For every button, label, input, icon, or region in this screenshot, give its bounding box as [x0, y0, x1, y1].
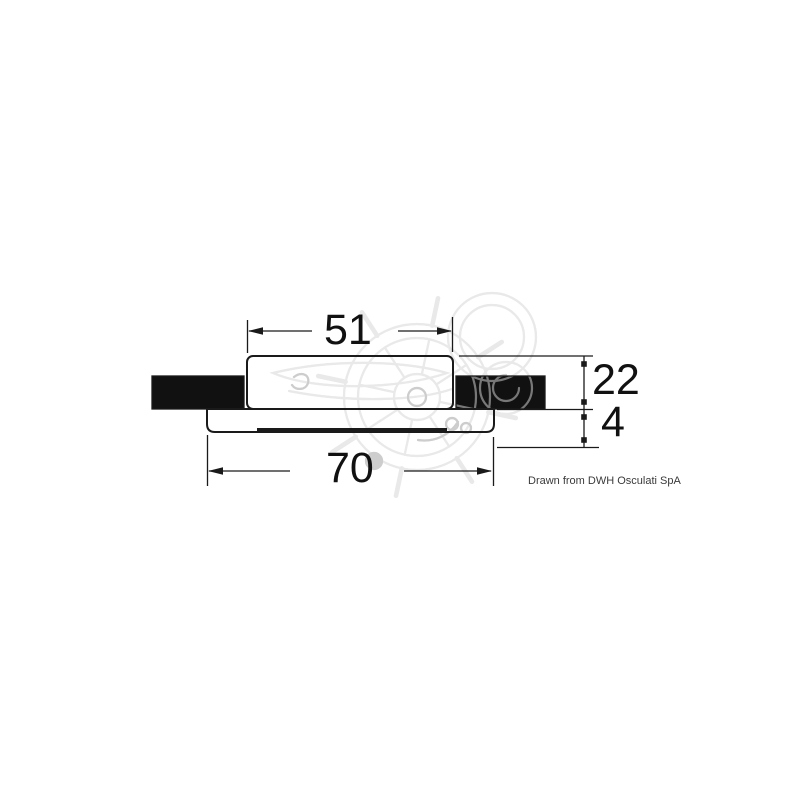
ceiling-panel-right-outline [456, 376, 545, 409]
dim-label-flange-thickness: 4 [601, 401, 625, 444]
dimension-22-4 [459, 356, 599, 448]
dim-70-arrow-left [208, 467, 223, 475]
dim-51-arrow-left [248, 327, 263, 335]
dim-label-flange-width: 70 [326, 447, 374, 490]
dim-label-body-height: 22 [592, 359, 640, 402]
technical-drawing-canvas: 51 70 22 4 Drawn from DWH Osculati SpA [0, 0, 800, 800]
dim-4-marker-bottom [581, 437, 587, 443]
dim-22-marker-bottom [581, 399, 587, 405]
drawing-line-layer [0, 0, 800, 800]
ceiling-panel-left-outline [152, 376, 244, 409]
credit-text: Drawn from DWH Osculati SpA [528, 475, 681, 488]
light-body-outline [247, 356, 453, 409]
dim-4-marker-top [581, 414, 587, 420]
dim-22-marker-top [581, 361, 587, 367]
dim-70-arrow-right [477, 467, 492, 475]
dim-51-arrow-right [437, 327, 452, 335]
dim-label-body-width: 51 [324, 309, 372, 352]
